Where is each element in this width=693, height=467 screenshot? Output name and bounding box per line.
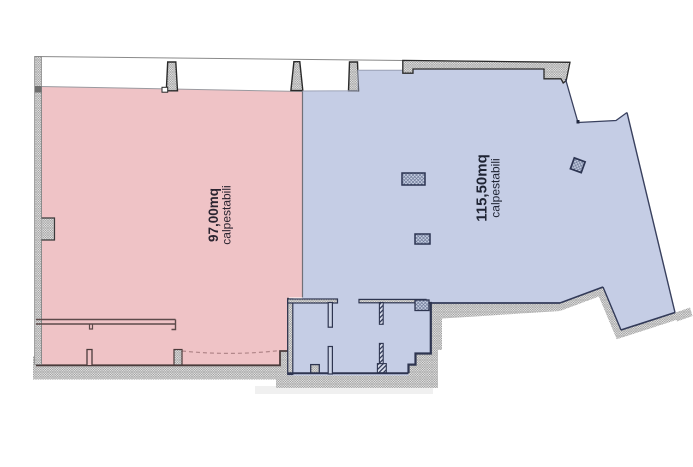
svg-text:calpestabili: calpestabili [220, 185, 234, 244]
svg-text:calpestabili: calpestabili [489, 158, 503, 217]
